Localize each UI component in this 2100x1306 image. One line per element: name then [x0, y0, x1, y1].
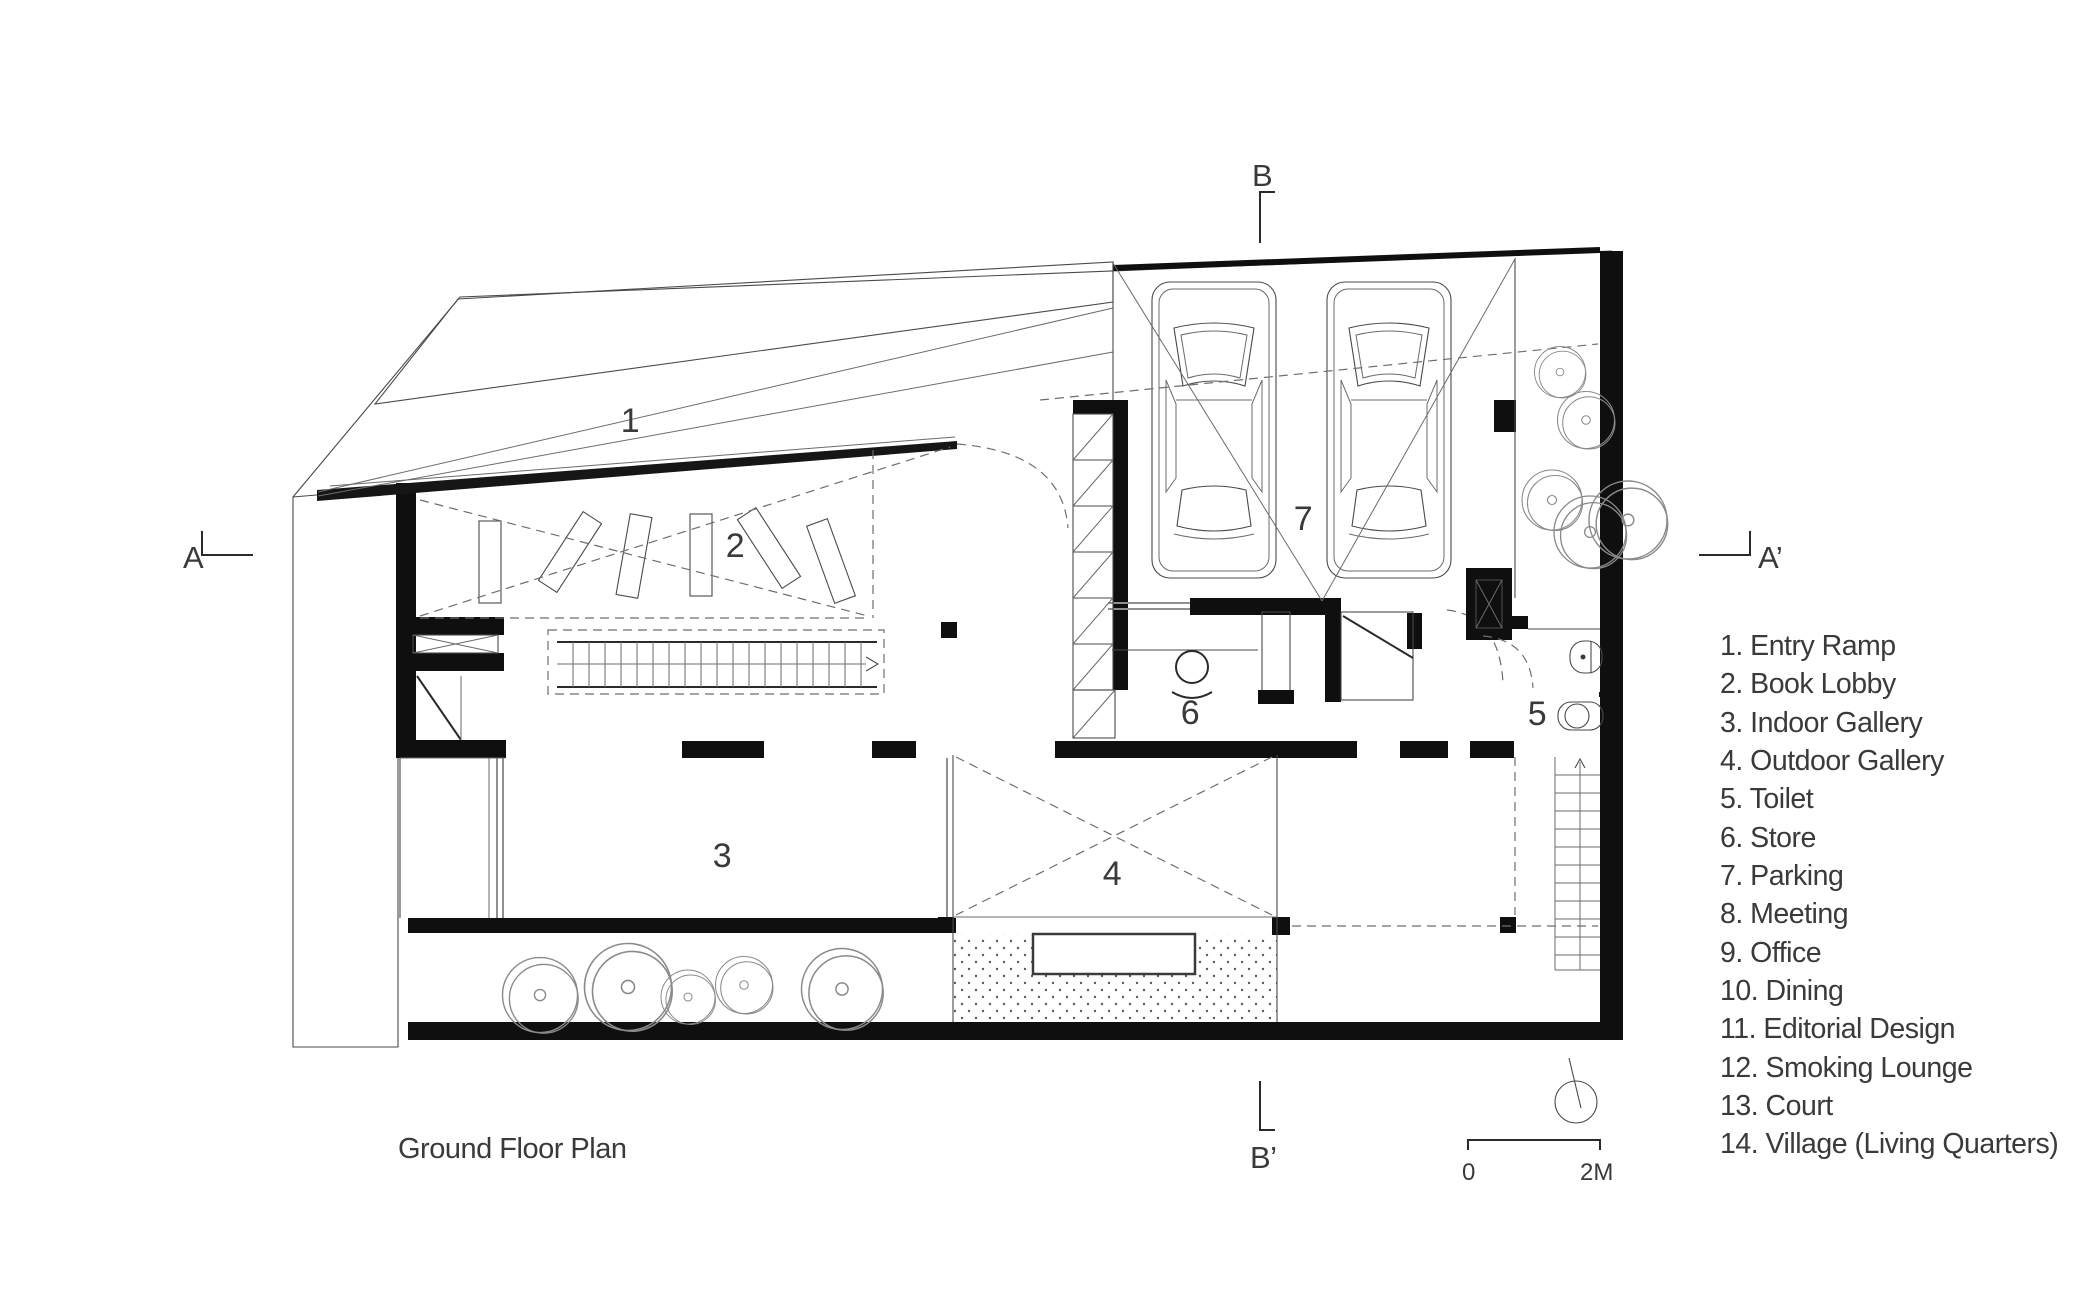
room-label-parking: 7 [1294, 500, 1312, 538]
legend-item: 7. Parking [1720, 860, 1843, 892]
window-bay [400, 758, 505, 918]
walkway-arrow [866, 657, 878, 671]
right-stair [1555, 757, 1600, 970]
meeting-nook [1341, 612, 1413, 700]
door-swing-arc [1483, 636, 1533, 688]
section-marker-a-prime: A’ [1758, 540, 1782, 575]
legend-item: 1. Entry Ramp [1720, 630, 1896, 662]
page: { "title": "Ground Floor Plan", "legend"… [0, 0, 2100, 1306]
room-label-entry-ramp: 1 [621, 402, 639, 440]
legend-item: 3. Indoor Gallery [1720, 707, 1923, 739]
car-icon [1327, 282, 1451, 578]
room-label-book-lobby: 2 [726, 527, 744, 565]
scale-end-label: 2M [1580, 1159, 1613, 1186]
section-marker-a: A [183, 540, 204, 575]
planting-strip-trees [503, 944, 884, 1034]
drawing-title: Ground Floor Plan [398, 1133, 626, 1165]
section-marker-b: B [1252, 158, 1272, 193]
scale-start-label: 0 [1462, 1159, 1475, 1186]
column [1272, 917, 1290, 935]
legend: 1. Entry Ramp 2. Book Lobby 3. Indoor Ga… [1720, 630, 2058, 1160]
room-label-toilet: 5 [1528, 695, 1546, 733]
ramp-wall [317, 441, 957, 501]
door-leaf [417, 676, 461, 740]
bench [1033, 934, 1195, 974]
column [938, 917, 954, 933]
wc-icon [1570, 641, 1602, 673]
legend-item: 9. Office [1720, 937, 1821, 969]
courtyard-trees-right [1522, 347, 1668, 569]
section-marker-b-prime: B’ [1250, 1140, 1277, 1175]
legend-item: 4. Outdoor Gallery [1720, 745, 1945, 777]
central-walkway [548, 630, 884, 694]
legend-item: 2. Book Lobby [1720, 668, 1897, 700]
car-icon [1152, 282, 1276, 578]
walls [317, 251, 1623, 1040]
shelf-column [1073, 414, 1115, 738]
stipple-strip-left [293, 488, 398, 1047]
scale-bar: 0 2M [1462, 1140, 1613, 1186]
door-swing-arc [957, 444, 1068, 528]
legend-item: 13. Court [1720, 1090, 1833, 1122]
site-outline [293, 250, 1612, 497]
room-label-store: 6 [1181, 694, 1199, 732]
legend-item: 11. Editorial Design [1720, 1013, 1955, 1045]
legend-item: 5. Toilet [1720, 783, 1814, 815]
legend-item: 14. Village (Living Quarters) [1720, 1128, 2058, 1160]
legend-item: 10. Dining [1720, 975, 1843, 1007]
floor-plan-drawing: 1 2 3 4 5 6 7 A A’ B B’ Ground Floor Pla… [0, 0, 2100, 1306]
stipple-wedge-top [375, 262, 1113, 404]
legend-item: 6. Store [1720, 822, 1816, 854]
legend-item: 8. Meeting [1720, 898, 1848, 930]
room-label-outdoor-gallery: 4 [1103, 855, 1121, 893]
room-label-indoor-gallery: 3 [713, 837, 731, 875]
stool-icon [1176, 651, 1208, 683]
store-area [1112, 610, 1503, 704]
legend-item: 12. Smoking Lounge [1720, 1052, 1972, 1084]
sink-icon [1558, 692, 1604, 730]
column [941, 622, 957, 638]
column [1500, 917, 1516, 933]
shaft [1466, 568, 1512, 640]
north-arrow-icon [1555, 1058, 1597, 1123]
